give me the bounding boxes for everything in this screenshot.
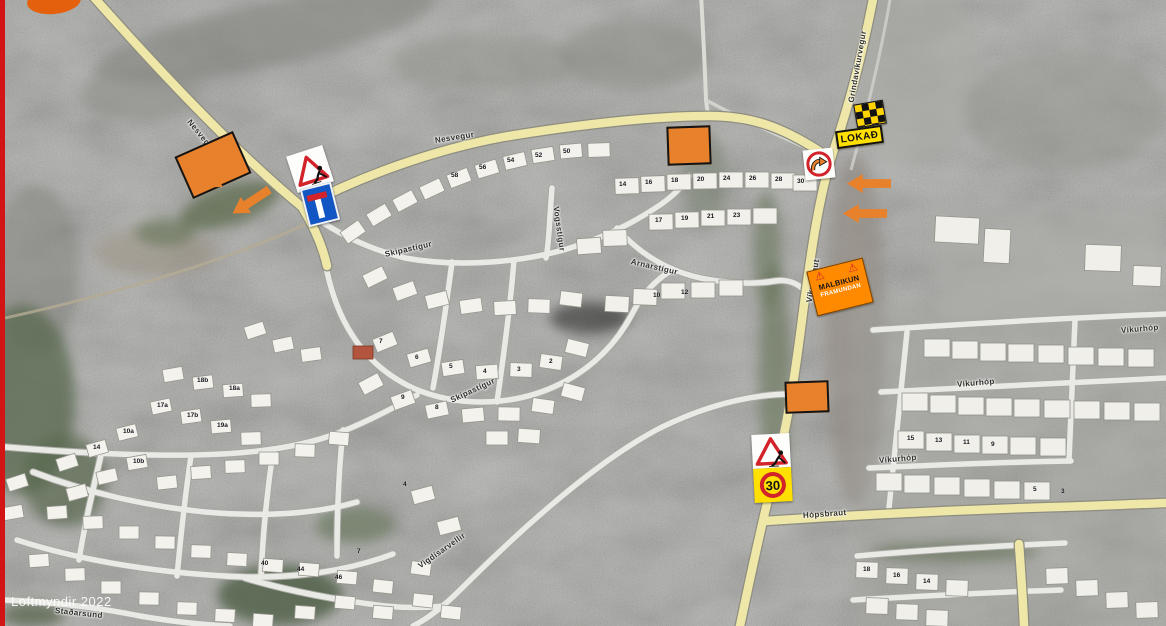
house-number: 9 — [401, 394, 405, 401]
house-number: 56 — [479, 164, 486, 171]
temporary-speed-limit-sign: 30 — [753, 467, 793, 503]
house-number: 26 — [749, 175, 756, 182]
house-number: 4 — [483, 368, 487, 375]
detour-arrow-icon — [805, 150, 834, 179]
house-number: 13 — [935, 437, 942, 444]
speed-limit-value: 30 — [759, 471, 786, 498]
house-number: 24 — [723, 175, 730, 182]
house-number: 50 — [563, 148, 570, 155]
house-number: 58 — [451, 172, 458, 179]
house-number: 16 — [893, 572, 900, 579]
house-number: 10 — [653, 292, 660, 299]
house-number: 9 — [991, 441, 995, 448]
house-number: 18 — [671, 177, 678, 184]
satellite-imagery — [5, 0, 1166, 626]
roadwork-icon — [753, 435, 789, 468]
house-number: 7 — [357, 548, 361, 555]
house-number: 14 — [619, 181, 626, 188]
house-number: 28 — [775, 176, 782, 183]
house-number: 14 — [923, 578, 930, 585]
house-number: 3 — [517, 366, 521, 373]
house-number: 16 — [645, 179, 652, 186]
house-number: 7 — [379, 338, 383, 345]
roadworks-map-image: NesvegurNesvegurGrindavíkurvegurVíkurbra… — [0, 0, 1166, 626]
imagery-attribution: Loftmyndir 2022 — [11, 594, 112, 609]
house-number: 40 — [261, 560, 268, 567]
house-number: 3 — [1061, 488, 1065, 495]
house-number: 15 — [907, 435, 914, 442]
roadwork-warning-sign — [751, 433, 791, 469]
house-number: 8 — [435, 404, 439, 411]
house-number: 18b — [197, 377, 208, 384]
house-number: 30 — [797, 178, 804, 185]
house-number: 20 — [697, 176, 704, 183]
house-number: 10a — [123, 428, 134, 435]
satellite-map: NesvegurNesvegurGrindavíkurvegurVíkurbra… — [5, 0, 1166, 626]
house-number: 14 — [93, 444, 100, 451]
roadwork-speed-sign-group: 30 — [751, 433, 793, 503]
detour-sign — [803, 148, 836, 181]
house-number: 18 — [863, 566, 870, 573]
house-number: 23 — [733, 212, 740, 219]
house-number: 17b — [187, 412, 198, 419]
house-number: 5 — [449, 363, 453, 370]
house-number: 21 — [707, 213, 714, 220]
house-number: 17a — [157, 402, 168, 409]
closure-area-marker — [784, 380, 829, 414]
house-number: 54 — [507, 157, 514, 164]
closure-area-marker — [666, 125, 711, 166]
house-number: 44 — [297, 566, 304, 573]
house-number: 46 — [335, 574, 342, 581]
house-number: 11 — [963, 439, 970, 446]
map-frame-border — [0, 0, 5, 626]
house-number: 52 — [535, 152, 542, 159]
house-number: 18a — [229, 385, 240, 392]
house-number: 19a — [217, 422, 228, 429]
house-number: 10b — [133, 458, 144, 465]
dead-end-stem — [315, 199, 325, 219]
house-number: 4 — [403, 481, 407, 488]
house-number: 17 — [655, 217, 662, 224]
house-number: 19 — [681, 215, 688, 222]
closure-barrier-icon — [853, 100, 887, 129]
house-number: 2 — [549, 358, 553, 365]
house-number: 12 — [681, 289, 688, 296]
house-number: 5 — [1033, 486, 1037, 493]
house-number: 6 — [415, 354, 419, 361]
